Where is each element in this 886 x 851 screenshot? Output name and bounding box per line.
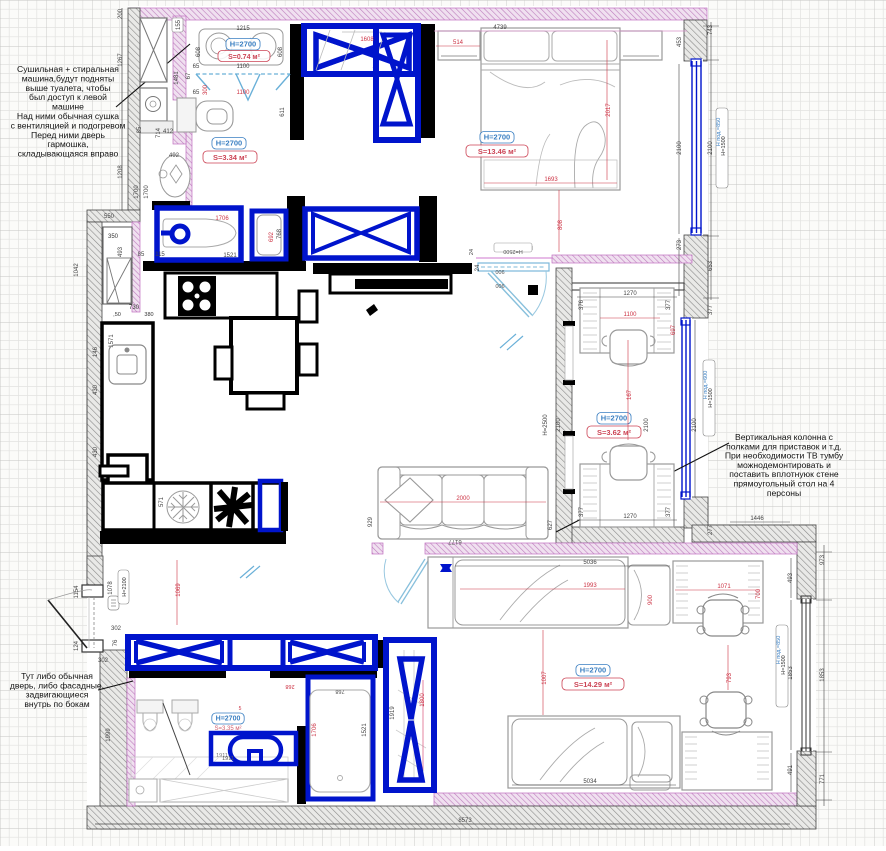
svg-text:300: 300	[203, 84, 209, 95]
svg-text:5036: 5036	[583, 560, 597, 566]
svg-text:1215: 1215	[236, 26, 250, 32]
svg-text:1700: 1700	[134, 185, 140, 199]
svg-text:700: 700	[756, 588, 762, 599]
svg-text:692: 692	[269, 231, 275, 242]
svg-text:124: 124	[74, 640, 80, 651]
svg-text:377: 377	[666, 299, 672, 310]
svg-text:H=2700: H=2700	[230, 40, 256, 49]
svg-text:1706: 1706	[312, 723, 318, 737]
svg-text:5034: 5034	[583, 779, 597, 785]
svg-text:1100: 1100	[624, 312, 638, 318]
svg-text:808: 808	[558, 219, 564, 230]
svg-text:430: 430	[93, 446, 99, 457]
svg-text:1078: 1078	[108, 581, 114, 595]
svg-text:1853: 1853	[820, 668, 826, 682]
svg-text:200: 200	[118, 8, 124, 19]
svg-text:376: 376	[579, 299, 585, 310]
svg-text:24: 24	[475, 264, 481, 271]
svg-text:900: 900	[648, 594, 654, 605]
svg-text:771: 771	[820, 773, 826, 784]
svg-text:H=2100: H=2100	[122, 577, 128, 596]
svg-text:1800: 1800	[420, 693, 426, 707]
svg-text:4739: 4739	[493, 25, 507, 31]
svg-text:730: 730	[129, 305, 140, 311]
svg-text:2100: 2100	[556, 418, 562, 432]
svg-text:302: 302	[111, 626, 122, 632]
svg-text:персоны: персоны	[767, 488, 801, 498]
svg-text:929: 929	[368, 516, 374, 527]
svg-text:H=2700: H=2700	[216, 716, 241, 723]
svg-text:,50: ,50	[113, 312, 121, 318]
svg-text:S=0.74 м²: S=0.74 м²	[228, 54, 261, 61]
svg-text:1521: 1521	[223, 253, 237, 259]
svg-text:697: 697	[671, 324, 677, 335]
svg-text:350: 350	[108, 234, 119, 240]
svg-text:492: 492	[169, 153, 180, 159]
svg-text:H=2700: H=2700	[601, 414, 627, 423]
svg-text:Н под.=850: Н под.=850	[776, 636, 782, 665]
svg-text:900: 900	[495, 268, 504, 274]
svg-text:453: 453	[677, 36, 683, 47]
svg-text:430: 430	[93, 384, 99, 395]
svg-text:900: 900	[495, 282, 504, 288]
svg-text:1999: 1999	[106, 728, 112, 742]
svg-text:2000: 2000	[456, 496, 470, 502]
svg-text:493: 493	[118, 246, 124, 257]
svg-text:S=13.46 м²: S=13.46 м²	[478, 147, 517, 156]
svg-text:611: 611	[280, 107, 286, 117]
svg-text:1208: 1208	[118, 165, 124, 179]
svg-text:S=3.34 м²: S=3.34 м²	[213, 153, 248, 162]
svg-text:H=2700: H=2700	[216, 139, 242, 148]
svg-text:1100: 1100	[237, 90, 251, 96]
svg-text:377: 377	[666, 506, 672, 517]
svg-text:155: 155	[176, 19, 182, 30]
svg-text:Н=2500: Н=2500	[503, 248, 522, 254]
svg-text:65: 65	[193, 64, 200, 70]
svg-text:6177: 6177	[448, 538, 462, 544]
svg-text:Н под.=850: Н под.=850	[716, 118, 722, 147]
svg-text:514: 514	[453, 40, 464, 46]
svg-text:268: 268	[285, 683, 294, 689]
svg-text:1693: 1693	[544, 177, 558, 183]
svg-text:973: 973	[820, 554, 826, 565]
svg-text:768: 768	[335, 688, 344, 694]
svg-text:5: 5	[239, 706, 242, 712]
svg-text:H=2500: H=2500	[543, 414, 549, 436]
svg-text:550: 550	[104, 214, 115, 220]
svg-text:793: 793	[727, 672, 733, 683]
svg-text:273: 273	[677, 239, 683, 250]
svg-text:1100: 1100	[237, 64, 251, 70]
svg-text:167: 167	[627, 389, 633, 400]
svg-text:115: 115	[155, 252, 165, 258]
svg-text:1919: 1919	[390, 706, 396, 720]
svg-text:1154: 1154	[74, 585, 80, 599]
svg-text:380: 380	[144, 312, 153, 318]
svg-text:1042: 1042	[74, 263, 80, 277]
svg-text:H=2700: H=2700	[484, 133, 510, 142]
svg-text:1521: 1521	[362, 723, 368, 737]
svg-text:1700: 1700	[144, 185, 150, 199]
svg-text:1706: 1706	[215, 216, 229, 222]
svg-text:2017: 2017	[606, 103, 612, 117]
svg-text:S=3.62 м²: S=3.62 м²	[597, 428, 632, 437]
svg-text:377: 377	[579, 506, 585, 517]
svg-text:277: 277	[708, 524, 714, 535]
svg-text:146: 146	[93, 346, 99, 357]
svg-text:1270: 1270	[623, 291, 637, 297]
svg-text:24: 24	[469, 249, 475, 255]
svg-text:571: 571	[159, 496, 165, 507]
svg-text:67: 67	[186, 72, 192, 79]
svg-text:65: 65	[193, 90, 200, 96]
svg-text:2100: 2100	[677, 141, 683, 155]
svg-text:1007: 1007	[542, 671, 548, 685]
svg-text:1911: 1911	[222, 756, 234, 762]
svg-text:S=3.35 м²: S=3.35 м²	[215, 726, 242, 732]
svg-text:768: 768	[277, 228, 283, 239]
svg-text:1071: 1071	[717, 584, 731, 590]
svg-text:412: 412	[163, 129, 174, 135]
svg-text:714: 714	[156, 127, 162, 138]
svg-text:1993: 1993	[583, 583, 597, 589]
svg-text:1481: 1481	[174, 71, 180, 85]
svg-text:608: 608	[196, 46, 202, 57]
svg-text:377: 377	[708, 304, 714, 315]
svg-text:Н под.=600: Н под.=600	[703, 371, 709, 400]
svg-text:1608: 1608	[360, 37, 374, 43]
svg-text:1270: 1270	[623, 514, 637, 520]
svg-text:внутрь по бокам: внутрь по бокам	[24, 699, 89, 709]
svg-text:76: 76	[113, 639, 119, 646]
svg-text:H=2700: H=2700	[580, 666, 606, 675]
svg-text:S=14.29 м²: S=14.29 м²	[574, 680, 613, 689]
svg-text:2100: 2100	[644, 418, 650, 432]
svg-text:8573: 8573	[458, 818, 472, 824]
svg-text:1446: 1446	[750, 516, 764, 522]
svg-text:627: 627	[548, 519, 554, 530]
svg-text:302: 302	[98, 658, 109, 664]
svg-text:608: 608	[278, 46, 284, 57]
svg-text:1267: 1267	[118, 53, 124, 67]
svg-text:85: 85	[137, 126, 143, 133]
svg-text:складывающаяся вправо: складывающаяся вправо	[18, 149, 119, 159]
svg-text:85: 85	[138, 252, 145, 258]
